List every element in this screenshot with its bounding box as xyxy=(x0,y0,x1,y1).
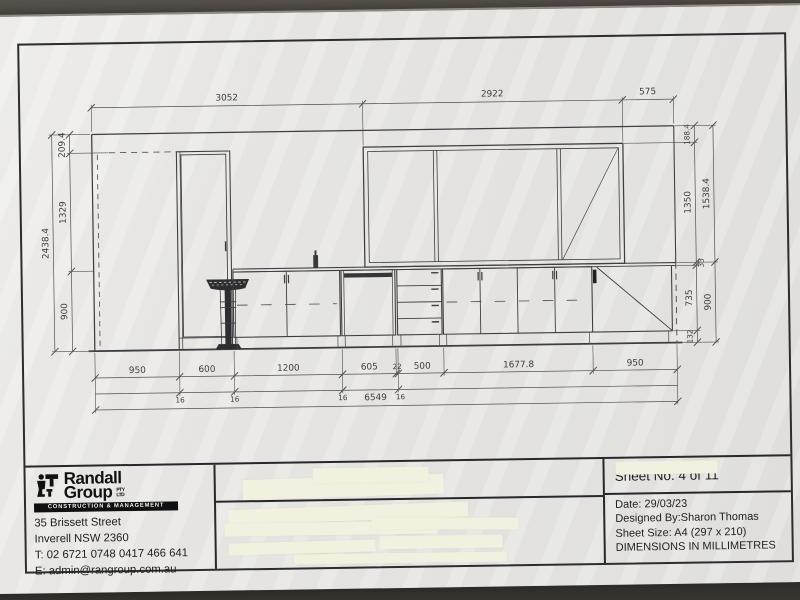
dim-bottom-5: 22 xyxy=(392,362,401,371)
dim-bottom-8: 950 xyxy=(627,358,644,368)
bench-tap xyxy=(313,250,318,267)
drawing-area: 3052 2922 575 2438.4 209.4 1329 900 188.… xyxy=(19,34,790,467)
dishwasher xyxy=(341,270,396,336)
dim-right-1: 188.4 xyxy=(682,124,691,145)
title-block-company-cell: Randall Group PTY LTD CONSTRUCTION & MAN… xyxy=(25,465,217,572)
title-block-middle-row2 xyxy=(216,497,604,569)
drawer-bank xyxy=(397,269,442,335)
whiteout-patch xyxy=(294,551,507,565)
angled-end-cabinet xyxy=(592,266,673,333)
title-block-middle-row1 xyxy=(215,459,603,503)
company-logo: Randall Group PTY LTD xyxy=(34,470,206,501)
dim-gap-4: 16 xyxy=(396,392,406,401)
dim-gap-2: 16 xyxy=(230,395,240,404)
dim-left-2: 1329 xyxy=(59,201,69,224)
title-block-middle-cell xyxy=(215,459,606,569)
builder-tools-icon xyxy=(34,472,61,499)
dim-right-outer-1: 1538.4 xyxy=(702,178,712,210)
dim-right-4: 735 xyxy=(685,289,695,306)
company-tagline: CONSTRUCTION & MANAGEMENT xyxy=(34,501,178,512)
company-suffix: PTY LTD xyxy=(116,488,124,498)
title-block: Randall Group PTY LTD CONSTRUCTION & MAN… xyxy=(25,454,791,571)
drawing-border-frame: 3052 2922 575 2438.4 209.4 1329 900 188.… xyxy=(17,32,794,573)
dim-top-2: 2922 xyxy=(481,89,504,99)
dim-right-3: 33 xyxy=(696,258,705,268)
window xyxy=(363,143,624,267)
elevation-drawing: 3052 2922 575 2438.4 209.4 1329 900 188.… xyxy=(36,75,745,423)
tall-cabinet xyxy=(176,151,232,350)
dim-bottom-6: 500 xyxy=(414,362,431,372)
sheet-units-note: DIMENSIONS IN MILLIMETRES xyxy=(616,538,786,555)
base-cabinet-run xyxy=(443,267,593,335)
company-name-line2: Group xyxy=(64,486,113,501)
dim-bottom-7: 1677.8 xyxy=(503,360,535,370)
whiteout-patch xyxy=(379,535,503,550)
title-block-info-cell: Sheet No. 4 of 11 Date: 29/03/23 Designe… xyxy=(604,456,792,563)
company-suffix-line2: LTD xyxy=(116,493,124,498)
sheet-meta: Date: 29/03/23 Designed By:Sharon Thomas… xyxy=(605,492,792,555)
whiteout-patch xyxy=(616,460,718,474)
dim-bottom-1: 950 xyxy=(129,366,146,376)
base-cabinet-1200 xyxy=(233,270,341,337)
company-name-line2-row: Group PTY LTD xyxy=(64,486,125,501)
company-email: E: admin@rangroup.com.au xyxy=(35,561,207,580)
dim-top-1: 3052 xyxy=(215,93,238,103)
company-phone: T: 02 6721 0748 0417 466 641 xyxy=(35,545,207,564)
dim-total: 6549 xyxy=(364,393,387,403)
company-name: Randall Group PTY LTD xyxy=(64,471,125,501)
dim-right-5: 132 xyxy=(685,329,694,343)
dim-right-2: 1350 xyxy=(683,191,693,214)
dim-right-outer-2: 900 xyxy=(704,293,714,310)
paper-sheet: 3052 2922 575 2438.4 209.4 1329 900 188.… xyxy=(0,3,800,594)
dim-bottom-2: 600 xyxy=(198,365,215,375)
whiteout-patch xyxy=(371,518,518,530)
pedestal-basin xyxy=(207,279,250,349)
dim-top-3: 575 xyxy=(639,87,656,97)
dim-left-3: 900 xyxy=(60,303,70,320)
dim-gap-3: 16 xyxy=(338,393,348,402)
dimension-labels: 3052 2922 575 2438.4 209.4 1329 900 188.… xyxy=(39,86,715,408)
dim-left-1: 209.4 xyxy=(57,132,67,158)
dim-bottom-3: 1200 xyxy=(277,363,300,373)
dim-left-outer: 2438.4 xyxy=(41,228,51,260)
dim-gap-1: 16 xyxy=(175,395,185,404)
dim-bottom-4: 605 xyxy=(361,362,378,372)
company-address: 35 Brissett Street Inverell NSW 2360 T: … xyxy=(34,513,207,580)
whiteout-patch xyxy=(312,467,428,483)
